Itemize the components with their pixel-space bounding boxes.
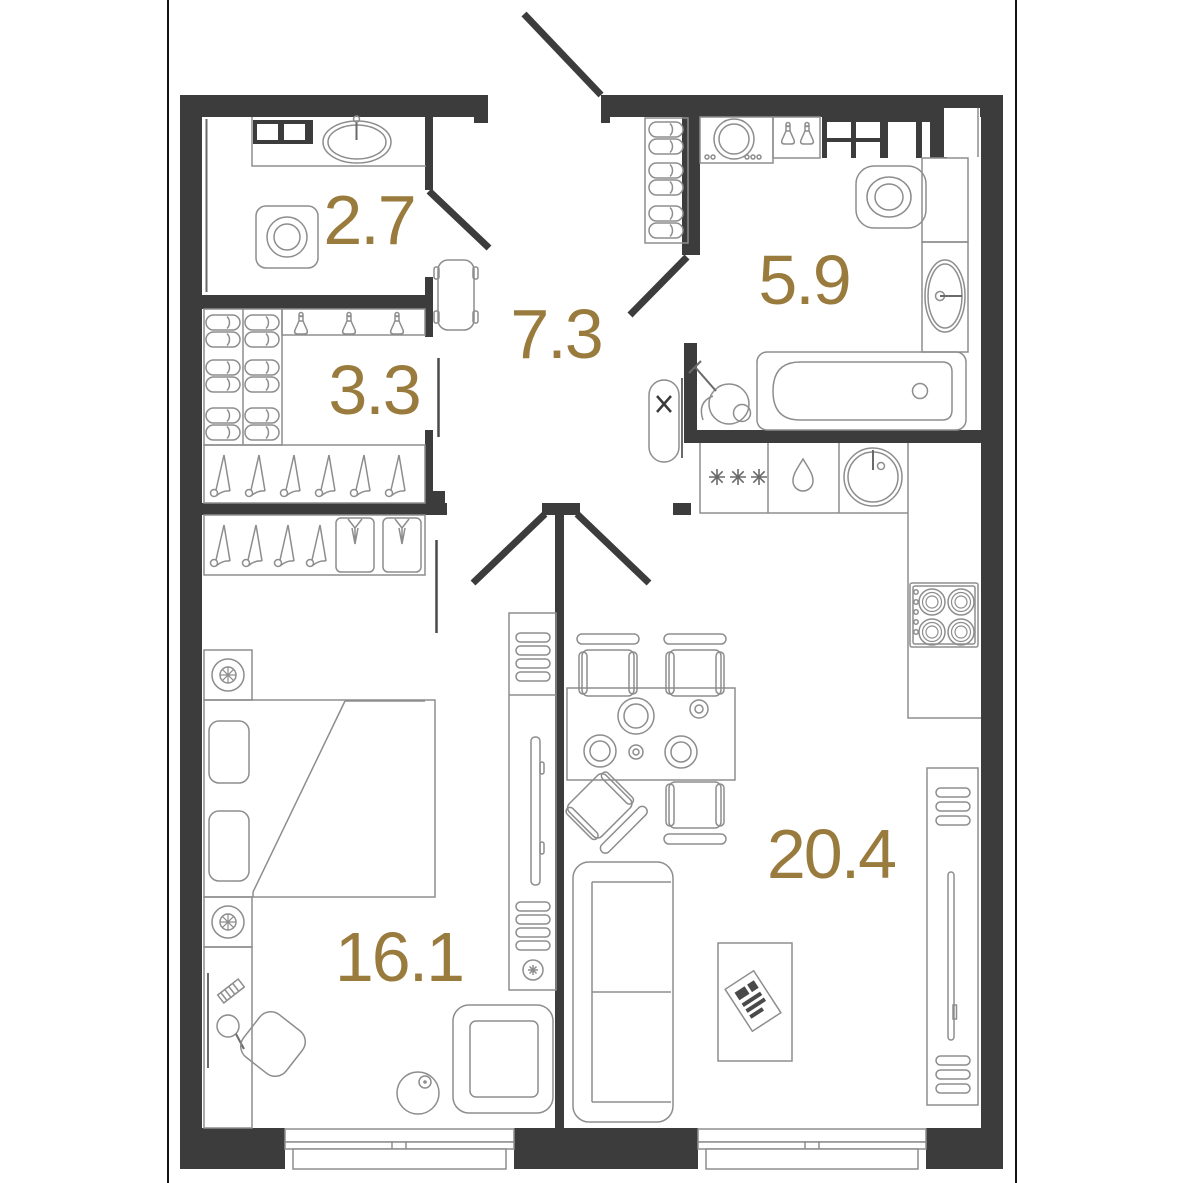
magazine-icon <box>725 971 781 1031</box>
kitchen-sink-icon <box>844 448 902 506</box>
chair <box>664 782 726 844</box>
wc-door <box>429 191 489 248</box>
bedroom-door <box>473 514 545 583</box>
entrance-door <box>524 14 601 95</box>
window-bedroom <box>285 1128 514 1169</box>
lamp-icon <box>212 906 244 938</box>
vanity-counter <box>922 158 968 352</box>
closet-hanger-rod <box>204 515 425 575</box>
chair <box>235 1006 311 1082</box>
floor-plan-drawing: 2.7 3.3 7.3 5.9 16.1 20.4 <box>0 0 1183 1183</box>
washing-machine-icon <box>700 117 773 163</box>
room-bedroom <box>204 515 556 1128</box>
room-label-hallway: 7.3 <box>510 295 601 373</box>
vacuum-cleaner-icon <box>689 361 751 424</box>
room-label-bathroom-small: 2.7 <box>323 181 414 259</box>
floor-plan-page: 2.7 3.3 7.3 5.9 16.1 20.4 <box>0 0 1183 1183</box>
spray-bottles-shelf <box>773 117 820 158</box>
armchair <box>453 1005 553 1113</box>
double-bed <box>204 700 435 897</box>
wall-bathroom-left-lower <box>684 343 697 430</box>
wall-outer-right <box>981 95 1003 1169</box>
shelf-icon <box>253 120 313 144</box>
room-label-bathroom: 5.9 <box>758 241 849 319</box>
wall-outer-top-right <box>601 95 1003 117</box>
ironing-board-icon <box>649 378 682 462</box>
toilet-icon <box>856 166 926 228</box>
wall-stub-right <box>673 503 691 515</box>
chair <box>664 634 726 696</box>
shoe-shelf <box>204 309 282 445</box>
shoe-rack <box>645 118 688 243</box>
wall-wc-wardrobe-divider <box>180 295 433 309</box>
dressing-table <box>204 947 252 1128</box>
wall-outer-top-left <box>180 95 488 117</box>
floor-lamp-icon <box>397 1072 439 1114</box>
comb-icon <box>218 979 245 1003</box>
wall-tab <box>601 117 610 123</box>
wall-bathroom-left-upper <box>682 117 700 255</box>
washing-machine-icon <box>256 206 318 268</box>
sofa <box>573 862 673 1122</box>
nightstand <box>204 650 252 700</box>
dining-table <box>567 688 735 780</box>
tv-console <box>509 613 556 990</box>
tall-cabinet-fridge <box>927 768 978 1105</box>
shelf-with-bottles <box>282 309 425 335</box>
dishwasher-drop-icon <box>793 459 813 491</box>
bathtub-icon <box>757 352 966 430</box>
dryer-icon <box>709 469 767 485</box>
room-label-wardrobe: 3.3 <box>328 351 419 429</box>
window-living <box>698 1128 926 1169</box>
hand-mirror-icon <box>217 1015 244 1049</box>
living-door <box>577 514 649 583</box>
nightstand <box>204 897 252 947</box>
lamp-icon <box>212 659 244 691</box>
room-living-kitchen <box>562 443 981 1122</box>
coffee-table <box>718 943 792 1061</box>
wall-hallway-bottom <box>180 503 447 515</box>
dining-chairs <box>562 634 726 855</box>
sink-icon <box>323 116 391 163</box>
vent-shaft-icon <box>822 116 947 158</box>
wall-left-column-a <box>425 117 433 190</box>
hanger-rod <box>204 445 425 503</box>
pillow <box>209 721 249 783</box>
pillow <box>209 811 249 881</box>
wall-notch <box>944 108 980 157</box>
wall-tab <box>474 117 488 123</box>
room-label-living-kitchen: 20.4 <box>767 815 895 893</box>
wall-outer-left <box>180 95 202 1169</box>
bench-icon <box>434 260 478 330</box>
wall-bathroom-bottom <box>684 430 981 443</box>
wall-center-stub <box>542 503 580 515</box>
socket-icon <box>523 960 543 980</box>
wall-left-column-c <box>425 430 433 515</box>
room-label-bedroom: 16.1 <box>335 918 463 996</box>
chair <box>577 634 639 696</box>
stove-icon <box>910 583 978 647</box>
wall-left-column-b <box>425 277 433 337</box>
sink-icon <box>925 260 965 332</box>
tv-icon <box>531 737 544 885</box>
bathroom-door <box>630 257 687 315</box>
kitchen-counter <box>700 443 981 718</box>
